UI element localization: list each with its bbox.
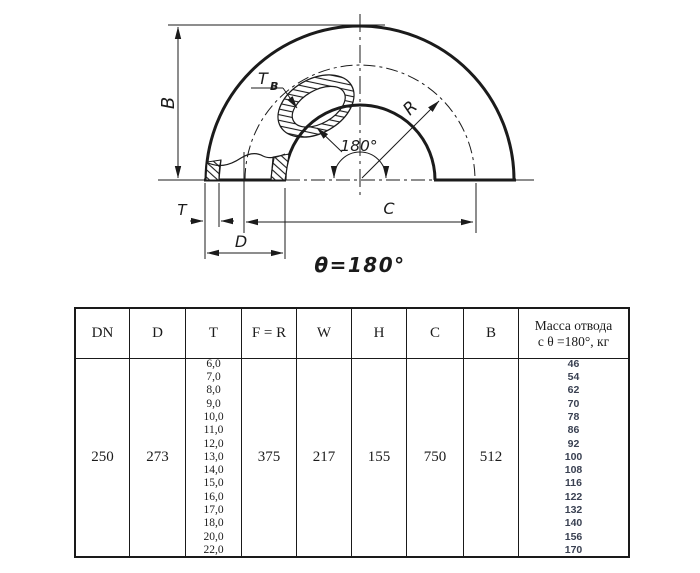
t-value: 22,0 <box>203 544 223 556</box>
label-b: B <box>158 97 179 109</box>
mass-value: 86 <box>568 424 580 437</box>
t-value: 20,0 <box>203 531 223 544</box>
label-angle: 180° <box>340 137 377 155</box>
mass-value: 140 <box>565 517 583 530</box>
mass-value: 92 <box>568 438 580 451</box>
t-value: 16,0 <box>203 491 223 504</box>
header-b: B <box>464 309 519 359</box>
mass-value: 116 <box>565 477 582 490</box>
t-value: 6,0 <box>206 359 220 371</box>
mass-value: 78 <box>568 411 580 424</box>
mass-value: 46 <box>568 359 580 371</box>
header-f-r: F = R <box>242 309 297 359</box>
mass-value: 170 <box>565 544 583 556</box>
cell-t-values: 6,0 7,0 8,0 9,0 10,0 11,0 12,0 13,0 14,0… <box>186 359 242 556</box>
cell-dn: 250 <box>76 359 130 556</box>
t-value: 13,0 <box>203 451 223 464</box>
mass-value: 132 <box>565 504 583 517</box>
header-d: D <box>130 309 186 359</box>
t-value: 12,0 <box>203 438 223 451</box>
label-tb-sub: B <box>270 80 278 93</box>
header-h: H <box>352 309 407 359</box>
dimension-table: DN D T F = R W H C B Масса отвода с θ =1… <box>74 307 630 558</box>
cell-mass-values: 46 54 62 70 78 86 92 100 108 116 122 132… <box>519 359 628 556</box>
t-value: 17,0 <box>203 504 223 517</box>
t-value: 8,0 <box>206 384 220 397</box>
header-mass-line2: с θ =180°, кг <box>535 334 613 350</box>
header-dn: DN <box>76 309 130 359</box>
catalog-page: B T D C R T B 180° θ=180° DN D T F = R W… <box>0 0 700 573</box>
header-mass-line1: Масса отвода <box>535 318 613 334</box>
mass-value: 156 <box>565 531 583 544</box>
t-value: 15,0 <box>203 477 223 490</box>
header-c: C <box>407 309 464 359</box>
label-tb-main: T <box>258 69 269 88</box>
t-value: 18,0 <box>203 517 223 530</box>
t-value: 11,0 <box>204 424 224 437</box>
cell-w: 217 <box>297 359 352 556</box>
label-c: C <box>383 199 395 218</box>
cell-h: 155 <box>352 359 407 556</box>
header-w: W <box>297 309 352 359</box>
t-value: 10,0 <box>203 411 223 424</box>
return-bend-drawing: B T D C R T B 180° θ=180° <box>0 0 700 302</box>
header-mass: Масса отвода с θ =180°, кг <box>519 309 628 359</box>
mass-value: 70 <box>568 398 580 411</box>
cell-b: 512 <box>464 359 519 556</box>
tb-opposing-arrow <box>317 128 342 152</box>
cell-d: 273 <box>130 359 186 556</box>
label-d: D <box>235 232 247 251</box>
t-value: 7,0 <box>206 371 220 384</box>
mass-value: 62 <box>568 384 580 397</box>
cell-f-r: 375 <box>242 359 297 556</box>
mass-value: 100 <box>565 451 583 464</box>
label-theta-note: θ=180° <box>314 253 405 277</box>
label-t: T <box>177 201 188 219</box>
mass-value: 54 <box>568 371 580 384</box>
header-t: T <box>186 309 242 359</box>
cell-c: 750 <box>407 359 464 556</box>
left-end-section <box>206 154 289 180</box>
mass-value: 108 <box>565 464 583 477</box>
t-value: 9,0 <box>206 398 220 411</box>
mass-value: 122 <box>565 491 583 504</box>
t-value: 14,0 <box>203 464 223 477</box>
